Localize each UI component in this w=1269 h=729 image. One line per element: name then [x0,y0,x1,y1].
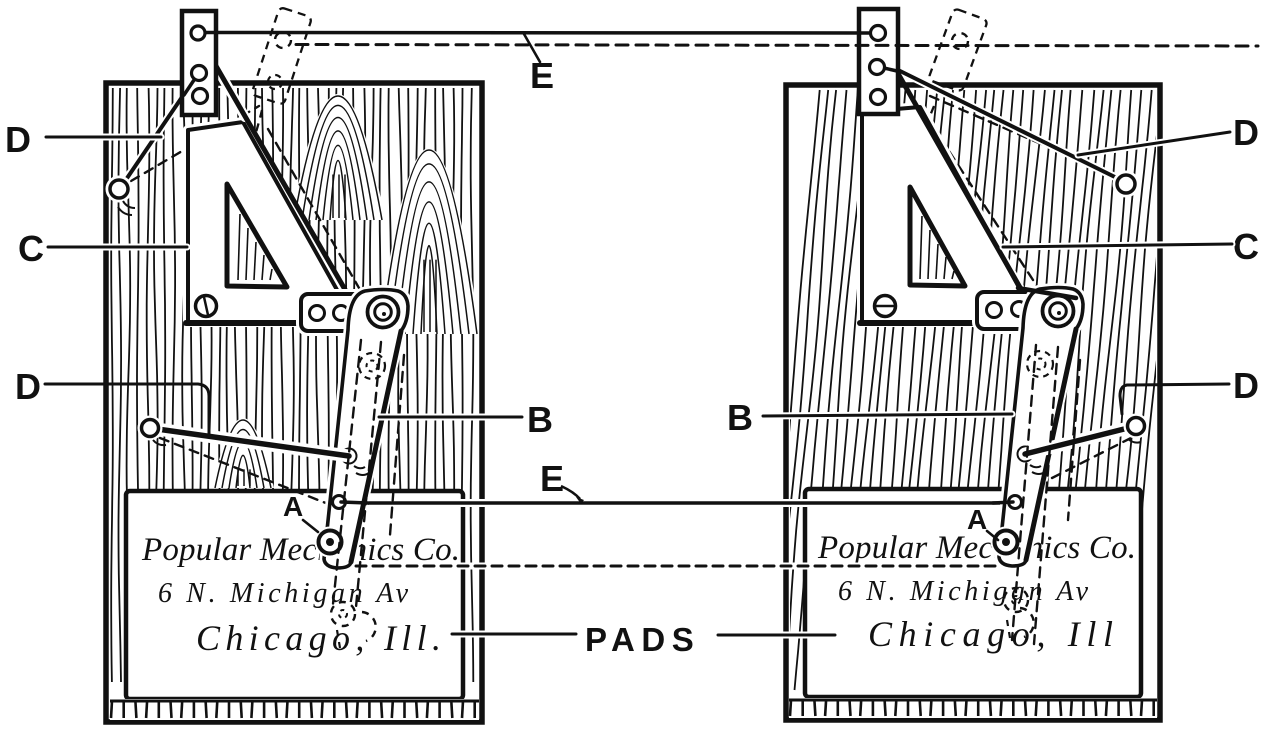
svg-text:B: B [527,399,553,440]
svg-text:Popular Mechanics Co.: Popular Mechanics Co. [817,530,1136,566]
svg-text:D: D [15,366,41,407]
svg-text:A: A [283,491,303,522]
svg-text:C: C [1233,226,1259,267]
svg-text:C: C [18,228,44,269]
svg-text:PADS: PADS [585,621,700,658]
svg-text:E: E [540,458,564,499]
svg-text:D: D [1233,112,1259,153]
svg-text:A: A [967,504,987,535]
svg-text:B: B [727,397,753,438]
svg-text:E: E [530,55,554,96]
svg-text:Chicago, Ill.: Chicago, Ill. [196,618,441,658]
svg-text:D: D [1233,365,1259,406]
svg-text:Chicago, Ill: Chicago, Ill [868,614,1113,654]
svg-text:D: D [5,119,31,160]
